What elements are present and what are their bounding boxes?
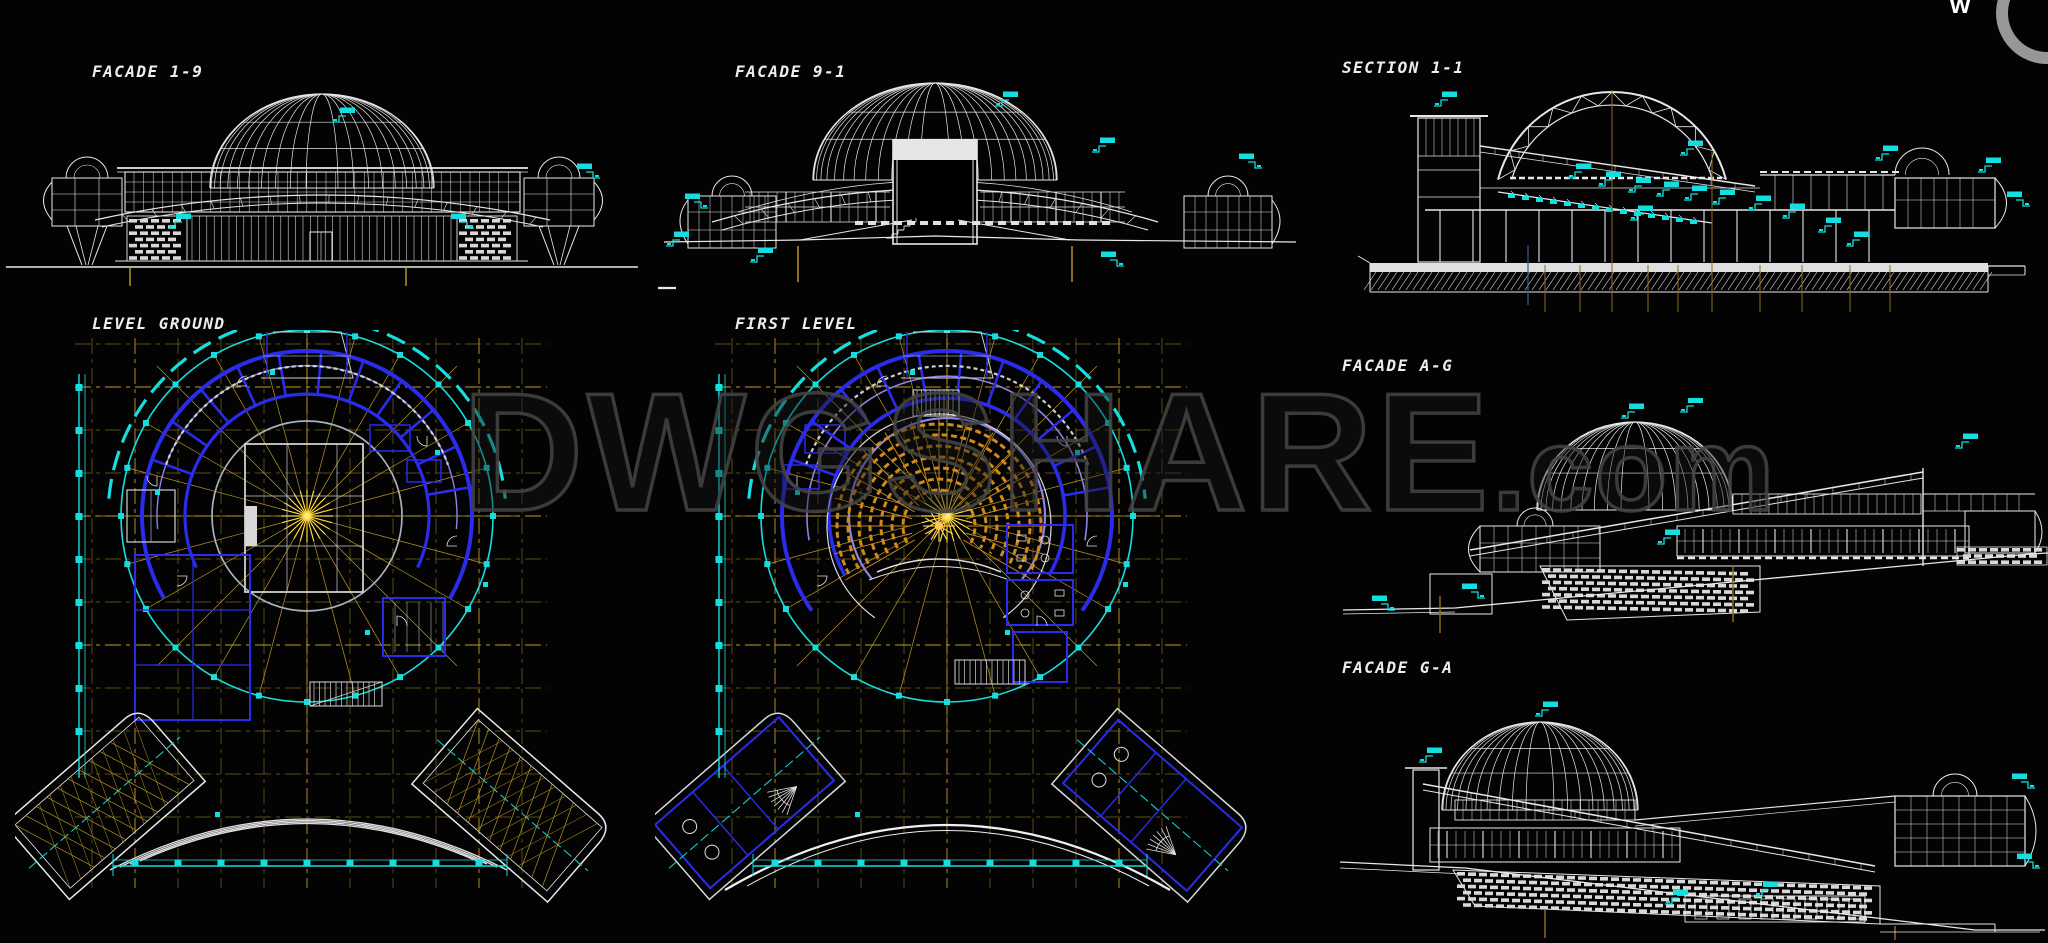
lower-level xyxy=(125,212,520,261)
ground-line xyxy=(6,261,638,286)
upper-strip xyxy=(1733,494,1921,514)
canopy-arcs xyxy=(725,825,1170,890)
side-pod xyxy=(524,157,603,265)
right-mast-wing xyxy=(1923,468,2047,566)
facade-a-g-drawing xyxy=(1335,398,2048,633)
cad-sheet: FACADE 1-9 FACADE 9-1 SECTION 1-1 LEVEL … xyxy=(0,0,2048,943)
grid-axes xyxy=(1528,90,1890,312)
brick-base xyxy=(1453,870,1880,924)
elevation-marker-icon xyxy=(577,164,600,179)
elevation-marker-icon xyxy=(1680,398,1703,412)
stair-tower xyxy=(1410,116,1488,262)
entrance-wing xyxy=(404,702,621,909)
side-pod xyxy=(1184,176,1280,248)
ribbed-dome xyxy=(1537,422,1733,510)
amphitheater xyxy=(827,414,1051,618)
cyan-tags xyxy=(155,370,488,817)
elevation-marker-icon xyxy=(1748,196,1771,211)
elevation-marker-icon xyxy=(1782,204,1805,219)
side-pod xyxy=(44,157,123,265)
first-level-plan xyxy=(655,330,1275,943)
elevation-marker-icon xyxy=(1846,232,1869,247)
roof-line xyxy=(1635,796,1895,826)
label-first-level: FIRST LEVEL xyxy=(735,314,857,333)
level-ground-plan xyxy=(15,330,635,943)
right-pod xyxy=(1895,774,2036,866)
window-band xyxy=(1430,828,1680,862)
entrance-wing xyxy=(1044,702,1261,909)
elevation-marker-icon xyxy=(1818,218,1841,233)
elevation-marker-icon xyxy=(1875,146,1898,161)
label-facade-1-9: FACADE 1-9 xyxy=(92,62,203,81)
corner-logo-ring-icon xyxy=(1996,0,2048,64)
ribbed-dome xyxy=(210,94,434,188)
floors-and-columns xyxy=(1425,178,1895,262)
elevation-marker-icon xyxy=(750,248,773,263)
label-level-ground: LEVEL GROUND xyxy=(92,314,226,333)
ground-line xyxy=(1340,862,2045,940)
elevation-marker-icon xyxy=(1434,92,1457,107)
entrance-wing xyxy=(15,699,213,906)
label-facade-9-1: FACADE 9-1 xyxy=(735,62,846,81)
elevation-marker-icon xyxy=(1656,182,1679,197)
elevation-marker-icon xyxy=(1462,584,1485,599)
stair xyxy=(310,682,382,706)
elevation-marker-icon xyxy=(666,232,689,247)
elevation-marker-icon xyxy=(1419,748,1442,763)
elevation-marker-icon xyxy=(1092,138,1115,153)
label-facade-a-g: FACADE A-G xyxy=(1342,356,1453,375)
left-pod xyxy=(1430,508,1600,614)
side-pod xyxy=(680,176,776,248)
corner-logo-letter: w xyxy=(1950,0,1970,20)
section-1-1-drawing xyxy=(1330,60,2048,325)
elevation-marker-icon xyxy=(1955,434,1978,449)
window-band xyxy=(1677,526,1969,558)
elevation-marker-icon xyxy=(2007,192,2030,207)
foundation xyxy=(1358,256,2025,292)
ribbed-dome xyxy=(1442,722,1638,810)
center-star xyxy=(281,490,333,542)
elevation-marker-icon xyxy=(1372,596,1395,611)
facade-1-9-drawing xyxy=(0,60,645,295)
elevation-marker-icon xyxy=(2012,774,2035,789)
central-portal xyxy=(893,140,977,244)
left-tower xyxy=(1405,768,1447,870)
elevation-marker-icon xyxy=(1239,154,1262,169)
elevation-marker-icon xyxy=(1712,190,1735,205)
label-section-1-1: SECTION 1-1 xyxy=(1342,58,1464,77)
right-block xyxy=(1760,148,2007,228)
label-facade-g-a: FACADE G-A xyxy=(1342,658,1453,677)
elevation-marker-icon xyxy=(995,92,1018,107)
elevation-marker-icon xyxy=(1535,702,1558,717)
facade-g-a-drawing xyxy=(1335,700,2048,943)
brick-base xyxy=(1540,566,1760,620)
elevation-marker-icon xyxy=(1101,252,1124,267)
elevation-marker-icon xyxy=(1628,178,1651,193)
facade-9-1-drawing xyxy=(650,60,1310,305)
elevation-marker-icon xyxy=(1978,158,2001,173)
elevation-marker-icon xyxy=(1621,404,1644,419)
